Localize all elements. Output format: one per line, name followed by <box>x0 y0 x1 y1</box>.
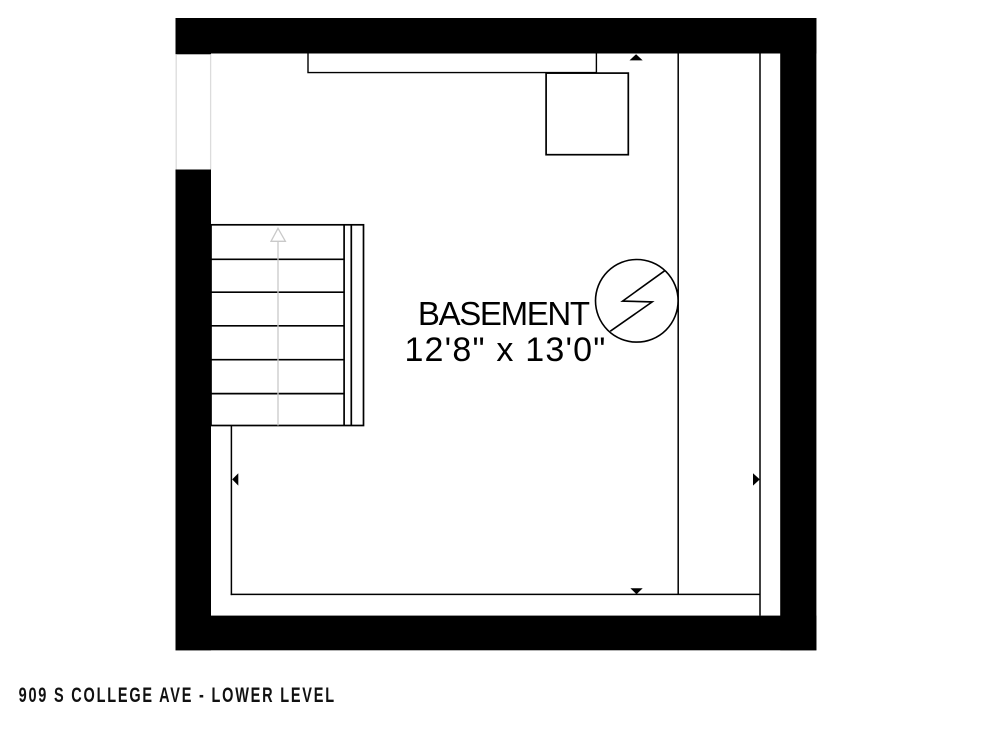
svg-text:BASEMENT: BASEMENT <box>418 295 590 332</box>
svg-text:12'8" x 13'0": 12'8" x 13'0" <box>404 331 606 369</box>
svg-text:909 S COLLEGE AVE - LOWER LEVE: 909 S COLLEGE AVE - LOWER LEVEL <box>19 683 336 706</box>
